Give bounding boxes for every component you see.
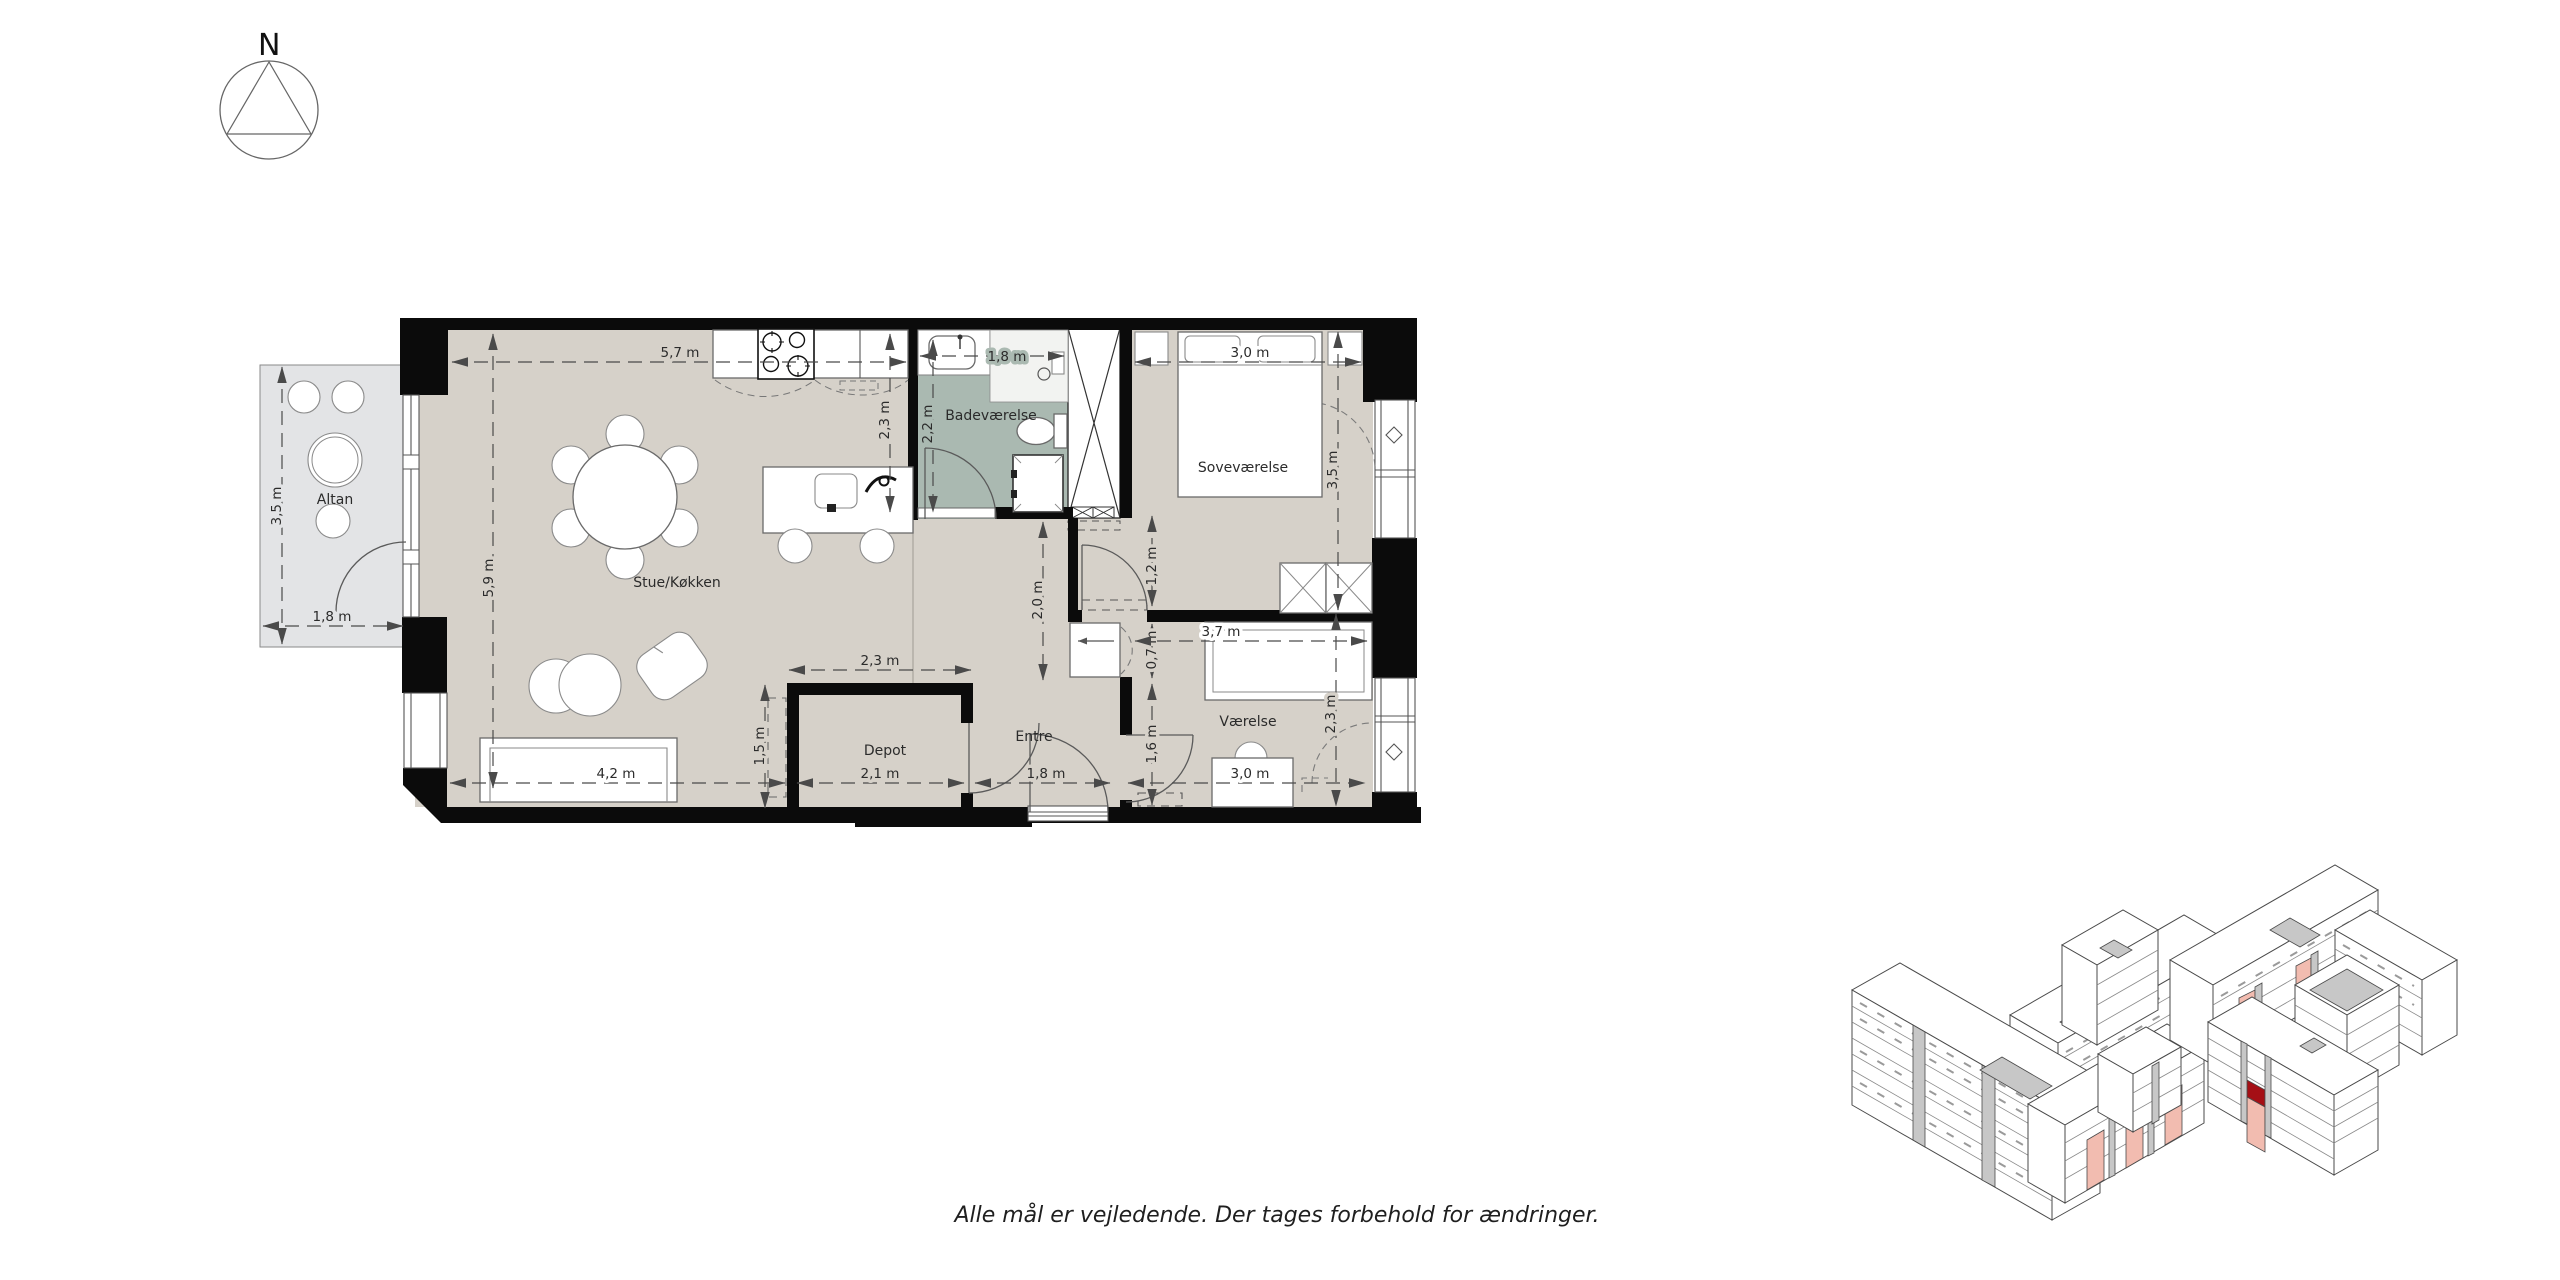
washing-machine — [1011, 455, 1063, 512]
label-balcony: Altan — [317, 492, 353, 508]
bar-stool — [778, 529, 812, 563]
bedroom-window — [1375, 400, 1415, 538]
highlighted-unit — [2247, 1097, 2265, 1152]
svg-text:1,8 m: 1,8 m — [988, 349, 1027, 365]
bath-sink — [929, 336, 975, 369]
floorplan-canvas: N — [0, 0, 2560, 1280]
stove — [758, 329, 814, 379]
living-window — [404, 693, 447, 768]
svg-text:3,0 m: 3,0 m — [1231, 766, 1270, 782]
svg-text:3,5 m: 3,5 m — [1325, 451, 1341, 490]
sofa — [480, 738, 677, 802]
svg-text:2,3 m: 2,3 m — [861, 653, 900, 669]
svg-text:3,7 m: 3,7 m — [1202, 624, 1241, 640]
floorplan-page: N — [0, 0, 2560, 1280]
balcony-table — [308, 433, 362, 487]
compass: N — [220, 28, 318, 159]
compass-needle — [227, 62, 311, 134]
bedside-table — [1328, 332, 1362, 365]
bar-stool — [860, 529, 894, 563]
bedside-table — [1135, 332, 1168, 365]
installation-shaft — [1068, 328, 1120, 530]
lounge-chair — [559, 654, 621, 716]
svg-text:5,7 m: 5,7 m — [661, 345, 700, 361]
svg-text:2,3 m: 2,3 m — [1323, 695, 1339, 734]
svg-text:1,6 m: 1,6 m — [1144, 725, 1160, 764]
compass-north-label: N — [258, 28, 280, 63]
floor-plan: 5,7 m 5,9 m 2,3 m 1,8 m 2,2 m 3,0 m — [260, 318, 1421, 827]
hall-closet — [1070, 623, 1120, 677]
shower-fixture — [1052, 352, 1064, 374]
svg-text:3,0 m: 3,0 m — [1231, 345, 1270, 361]
label-bedroom: Soveværelse — [1198, 460, 1288, 476]
dining-table — [573, 445, 677, 549]
label-bathroom: Badeværelse — [945, 408, 1037, 424]
svg-text:1,2 m: 1,2 m — [1144, 547, 1160, 586]
svg-text:4,2 m: 4,2 m — [597, 766, 636, 782]
island-sink — [815, 474, 857, 508]
label-storage: Depot — [864, 743, 907, 759]
entrance-door-recess — [1028, 806, 1108, 821]
balcony-chair — [316, 504, 350, 538]
room2-window — [1375, 678, 1415, 792]
dim-closet-width: 0,7 m — [1144, 624, 1160, 678]
svg-text:3,5 m: 3,5 m — [269, 487, 285, 526]
balcony-chair — [288, 381, 320, 413]
svg-text:2,2 m: 2,2 m — [920, 405, 936, 444]
disclaimer-text: Alle mål er vejledende. Der tages forbeh… — [952, 1202, 1599, 1228]
balcony-chair — [332, 381, 364, 413]
svg-text:1,8 m: 1,8 m — [313, 609, 352, 625]
balcony-window — [403, 395, 419, 617]
svg-text:2,1 m: 2,1 m — [861, 766, 900, 782]
label-living: Stue/Køkken — [633, 575, 721, 591]
svg-text:2,3 m: 2,3 m — [877, 401, 893, 440]
site-isometric — [1852, 865, 2457, 1220]
svg-text:2,0 m: 2,0 m — [1030, 581, 1046, 620]
svg-text:0,7 m: 0,7 m — [1144, 631, 1160, 670]
label-hall: Entre — [1015, 729, 1052, 745]
highlighted-unit — [2087, 1130, 2104, 1190]
svg-text:5,9 m: 5,9 m — [481, 559, 497, 598]
svg-text:1,8 m: 1,8 m — [1027, 766, 1066, 782]
svg-text:1,5 m: 1,5 m — [752, 727, 768, 766]
label-room2: Værelse — [1219, 714, 1276, 730]
wardrobe — [1280, 563, 1372, 613]
